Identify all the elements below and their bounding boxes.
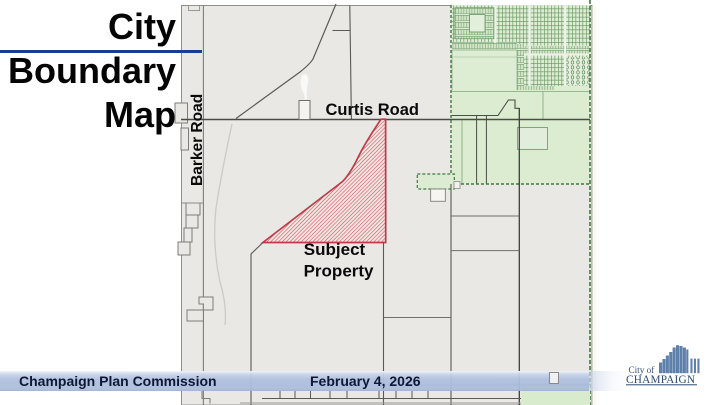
- svg-text:Curtis Road: Curtis Road: [326, 101, 420, 119]
- svg-text:Subject: Subject: [304, 240, 366, 259]
- svg-text:CHAMPAIGN: CHAMPAIGN: [626, 374, 695, 386]
- svg-text:Property: Property: [304, 262, 374, 281]
- svg-text:Barker Road: Barker Road: [189, 94, 206, 186]
